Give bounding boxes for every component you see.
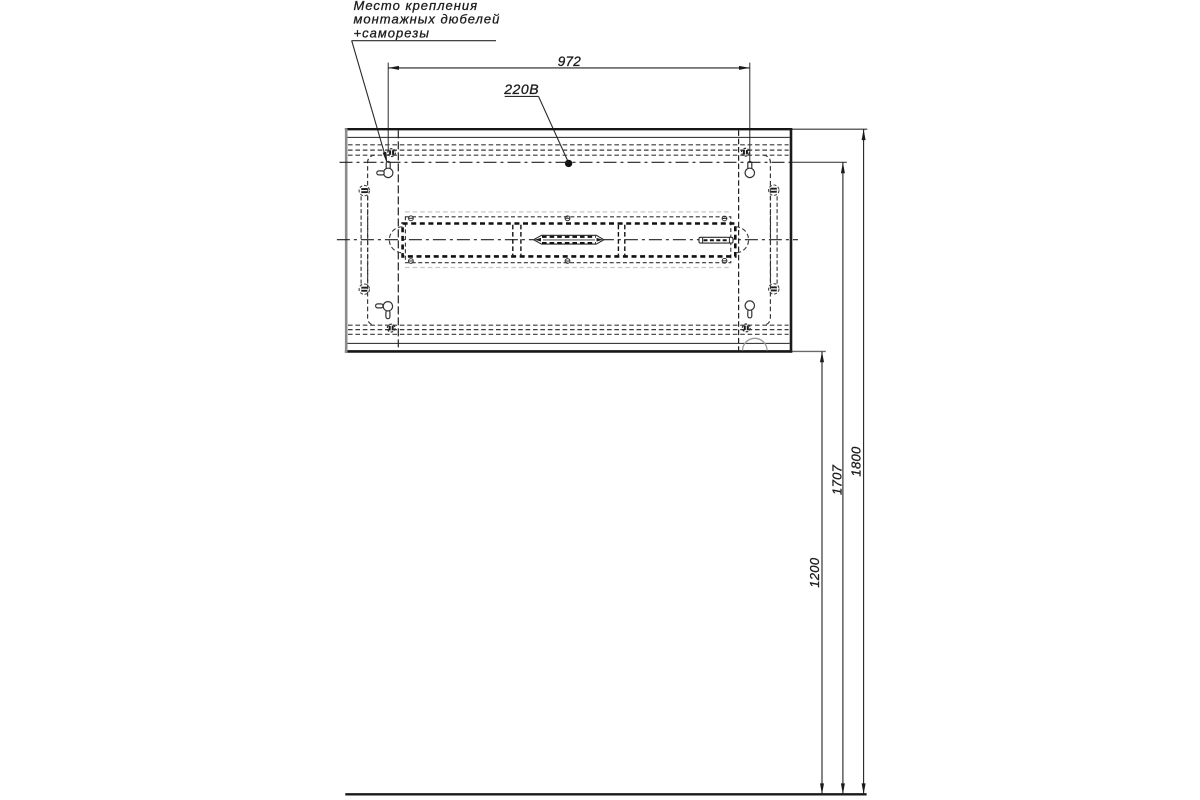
svg-text:220В: 220В (503, 81, 539, 97)
svg-text:монтажных дюбелей: монтажных дюбелей (354, 12, 501, 27)
svg-text:1200: 1200 (807, 557, 822, 588)
svg-text:1800: 1800 (849, 446, 864, 477)
svg-text:972: 972 (558, 54, 581, 69)
svg-text:+саморезы: +саморезы (354, 26, 430, 41)
svg-text:1707: 1707 (830, 464, 845, 495)
